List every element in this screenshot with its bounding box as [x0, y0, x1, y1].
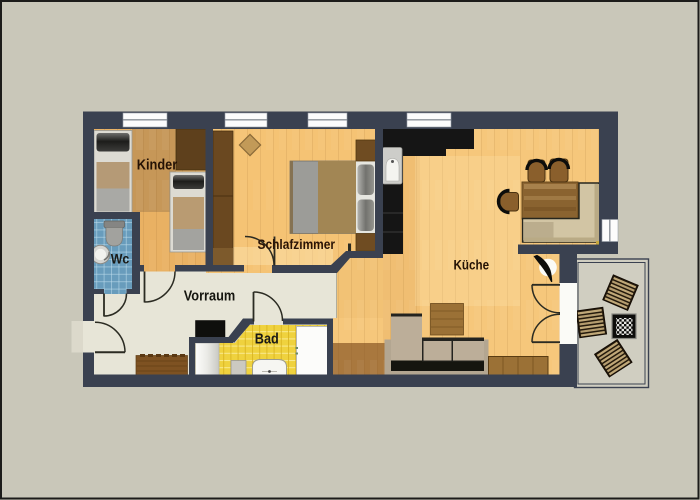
svg-text:Vorraum: Vorraum: [184, 288, 236, 304]
svg-text:Wc: Wc: [111, 250, 130, 266]
svg-text:Schlafzimmer: Schlafzimmer: [258, 236, 336, 252]
svg-text:Kinder: Kinder: [137, 158, 178, 174]
svg-text:Küche: Küche: [454, 258, 490, 273]
svg-text:Bad: Bad: [255, 331, 279, 348]
